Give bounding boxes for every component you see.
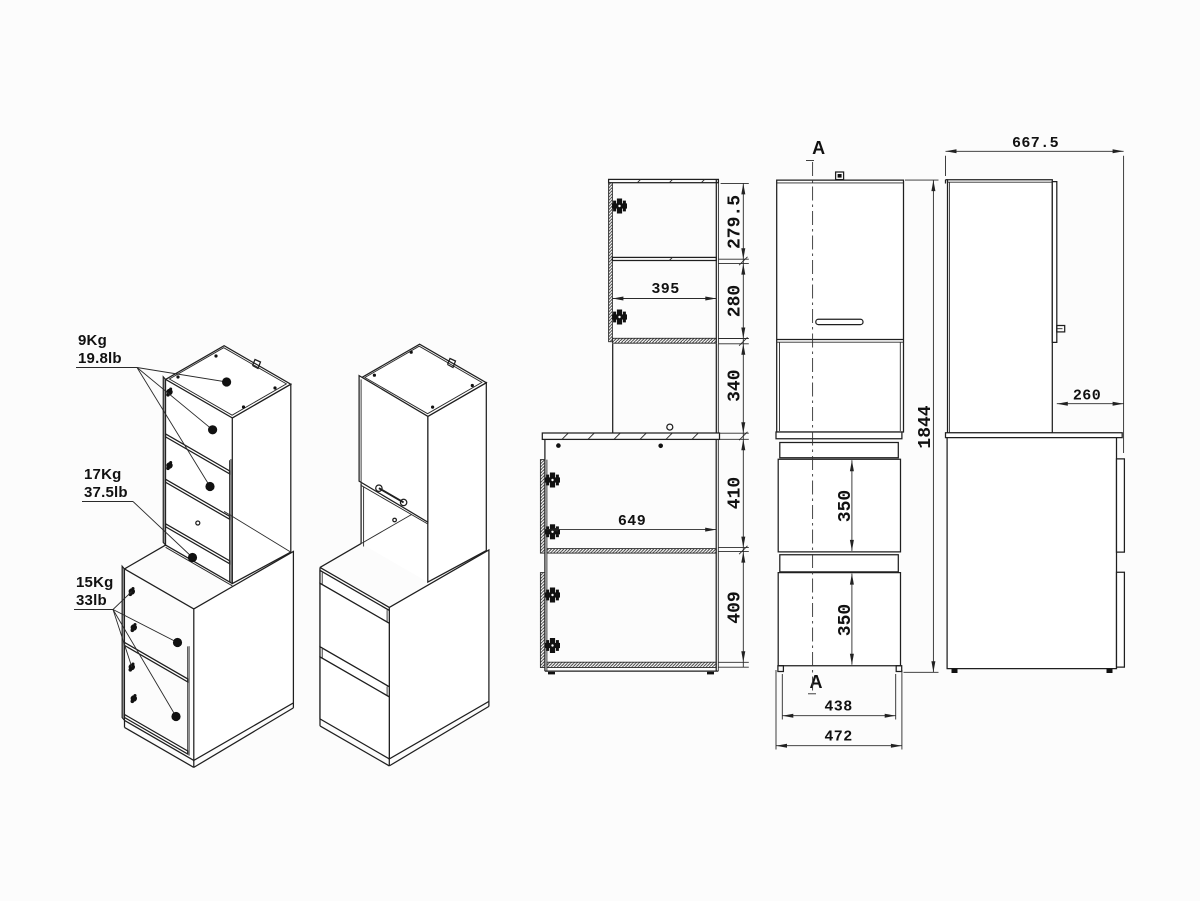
svg-text:260: 260 (1073, 388, 1101, 405)
svg-text:1844: 1844 (916, 405, 936, 448)
svg-text:A: A (810, 672, 823, 692)
svg-text:19.8lb: 19.8lb (78, 350, 122, 367)
svg-text:350: 350 (836, 490, 856, 522)
svg-text:410: 410 (726, 477, 746, 509)
svg-text:15Kg: 15Kg (76, 574, 113, 591)
svg-text:279.5: 279.5 (726, 195, 746, 249)
svg-text:667.5: 667.5 (1012, 135, 1059, 152)
svg-text:649: 649 (618, 513, 646, 530)
svg-text:280: 280 (726, 285, 746, 317)
svg-text:350: 350 (836, 604, 856, 636)
svg-text:33lb: 33lb (76, 592, 107, 609)
svg-text:A: A (812, 138, 825, 158)
svg-text:472: 472 (824, 729, 852, 746)
svg-text:37.5lb: 37.5lb (84, 484, 128, 501)
svg-text:9Kg: 9Kg (78, 332, 107, 349)
svg-text:17Kg: 17Kg (84, 466, 121, 483)
svg-text:409: 409 (726, 591, 746, 623)
svg-text:438: 438 (824, 699, 852, 716)
svg-text:395: 395 (651, 281, 679, 298)
svg-text:340: 340 (726, 369, 746, 401)
